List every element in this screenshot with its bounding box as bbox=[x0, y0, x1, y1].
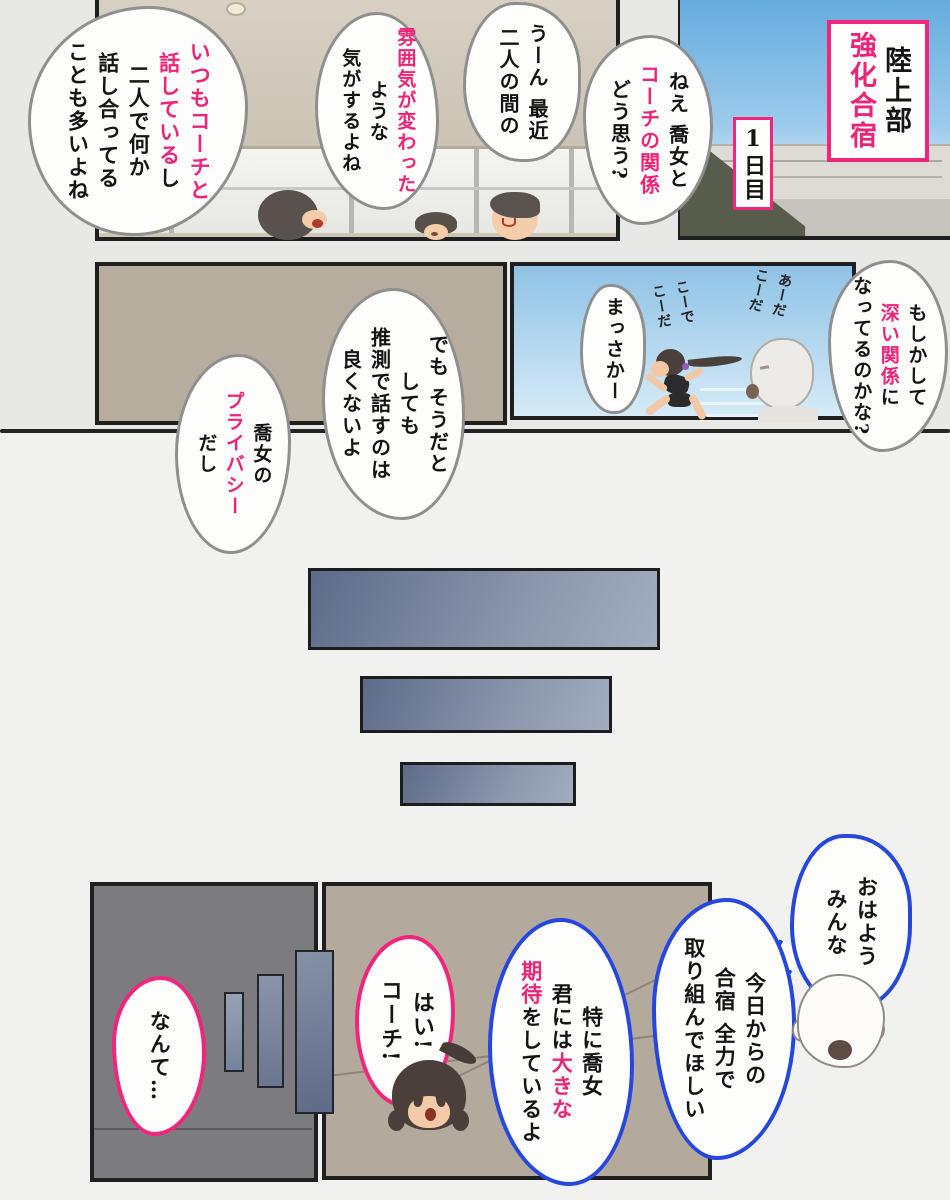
student-head-right bbox=[488, 192, 544, 242]
ponytail bbox=[688, 354, 743, 369]
window-mullion bbox=[474, 149, 479, 233]
window-bar bbox=[257, 974, 284, 1088]
student-head-left bbox=[258, 190, 330, 242]
student-head-middle bbox=[415, 212, 459, 242]
title-camp: 強化合宿 bbox=[843, 31, 878, 151]
transition-rect-2 bbox=[360, 676, 612, 733]
section-divider-line bbox=[0, 429, 950, 433]
day-box: 1日目 bbox=[733, 117, 773, 210]
speech-bubble-noway: まっさかー bbox=[580, 284, 646, 414]
speech-bubble-hmm: うーん 最近 二人の間の bbox=[463, 2, 581, 162]
sfx-arguing-right: あーだこーだ bbox=[741, 266, 797, 320]
window-bar bbox=[295, 950, 334, 1114]
day-label: 1日目 bbox=[742, 126, 764, 202]
floor-line bbox=[94, 1128, 312, 1130]
running-girl bbox=[640, 345, 750, 425]
title-club: 陸上部 bbox=[878, 31, 913, 151]
window-mullion bbox=[569, 149, 574, 233]
speech-bubble-today: 今日からの 合宿 全力で 取り組んでほしい bbox=[652, 898, 796, 1160]
speech-bubble-privacy: 喬女の プライバシー だし bbox=[175, 354, 291, 554]
ceiling-light-icon bbox=[226, 2, 246, 16]
transition-rect-3 bbox=[400, 762, 576, 806]
title-box: 陸上部 強化合宿 bbox=[827, 20, 929, 162]
manga-page: 陸上部 強化合宿 1日目 あーだこーだ こーでこーだ bbox=[0, 0, 950, 1200]
transition-rect-1 bbox=[308, 568, 660, 650]
window-bar bbox=[224, 992, 244, 1072]
coach-head-back bbox=[790, 974, 886, 1070]
sfx-arguing-left: こーでこーだ bbox=[644, 278, 699, 331]
kyoujo-head bbox=[388, 1042, 478, 1138]
watching-figure bbox=[746, 336, 836, 422]
